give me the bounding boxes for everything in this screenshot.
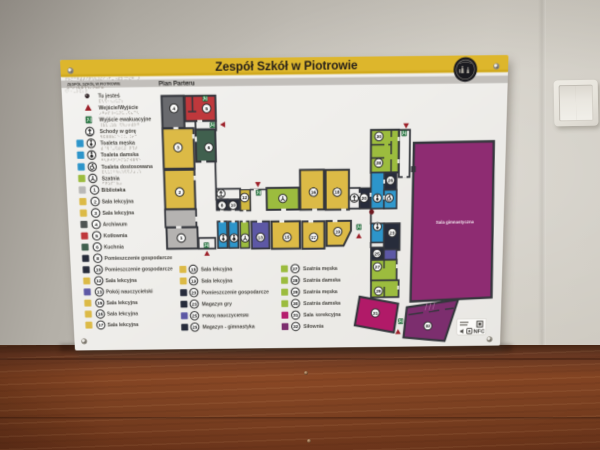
svg-text:Pokój nauczycielski: Pokój nauczycielski: [202, 313, 249, 319]
svg-text:Sala lekcyjna: Sala lekcyjna: [105, 278, 137, 284]
svg-text:Sala korekcyjna: Sala korekcyjna: [303, 313, 341, 319]
svg-text:Toaleta damska: Toaleta damska: [101, 152, 140, 158]
svg-text:3: 3: [94, 211, 97, 217]
svg-text:Sala lekcyjna: Sala lekcyjna: [201, 278, 233, 284]
svg-text:Toaleta męska: Toaleta męska: [100, 141, 136, 147]
svg-text:12: 12: [242, 195, 248, 201]
svg-text:31: 31: [293, 313, 298, 319]
svg-text:15: 15: [285, 235, 290, 241]
svg-text:29: 29: [376, 289, 381, 295]
svg-text:8: 8: [221, 203, 224, 209]
svg-text:5: 5: [205, 106, 208, 112]
svg-text:4: 4: [95, 222, 98, 228]
svg-text:13: 13: [97, 290, 103, 296]
svg-text:23: 23: [390, 231, 395, 237]
svg-text:29: 29: [293, 290, 298, 296]
svg-text:NFC: NFC: [473, 329, 485, 335]
svg-text:10: 10: [230, 203, 236, 209]
svg-text:Sala lekcyjna: Sala lekcyjna: [102, 199, 135, 205]
svg-text:Sala lekcyjna: Sala lekcyjna: [107, 323, 139, 329]
svg-text:Biblioteka: Biblioteka: [101, 187, 126, 193]
svg-text:Sala lekcyjna: Sala lekcyjna: [201, 267, 233, 273]
svg-text:Pomieszczenie gospodarcze: Pomieszczenie gospodarcze: [105, 267, 173, 273]
svg-text:27: 27: [293, 267, 298, 273]
svg-text:17: 17: [98, 323, 104, 329]
svg-text:18: 18: [191, 267, 197, 273]
svg-text:Szatnia męska: Szatnia męska: [303, 289, 338, 295]
svg-text:19: 19: [335, 229, 340, 235]
svg-text:28: 28: [293, 278, 298, 284]
svg-text:1: 1: [180, 236, 183, 242]
svg-text:2: 2: [94, 199, 97, 205]
svg-text:Schody w górę: Schody w górę: [100, 129, 137, 135]
svg-text:30: 30: [293, 301, 298, 307]
svg-text:4: 4: [173, 106, 176, 112]
svg-text:Szatnia: Szatnia: [102, 176, 121, 182]
svg-text:Pomieszczenie gospodarcze: Pomieszczenie gospodarcze: [104, 255, 172, 261]
svg-text:5: 5: [95, 234, 98, 240]
svg-text:6: 6: [207, 145, 210, 151]
svg-text:Siłownia: Siłownia: [303, 324, 324, 330]
svg-text:13: 13: [258, 235, 263, 241]
svg-text:Sala gimnastyczna: Sala gimnastyczna: [436, 219, 474, 224]
svg-text:Toaleta dostosowana: Toaleta dostosowana: [101, 164, 154, 170]
svg-text:20: 20: [191, 290, 196, 296]
svg-text:12: 12: [96, 279, 102, 285]
svg-text:1: 1: [93, 188, 96, 194]
svg-text:17: 17: [311, 235, 316, 241]
svg-text:10: 10: [96, 267, 102, 273]
svg-text:8: 8: [96, 256, 99, 262]
svg-text:Sala lekcyjna: Sala lekcyjna: [106, 300, 138, 306]
svg-text:Tu jesteś: Tu jesteś: [98, 93, 120, 99]
svg-text:32: 32: [293, 324, 298, 330]
svg-text:23: 23: [192, 302, 197, 308]
svg-text:Pokój nauczycielski: Pokój nauczycielski: [106, 289, 154, 295]
svg-text:Wejście/Wyjście: Wejście/Wyjście: [98, 105, 138, 111]
svg-text:16: 16: [311, 190, 316, 196]
svg-text:32: 32: [425, 324, 430, 330]
svg-text:20: 20: [361, 196, 366, 202]
svg-text:27: 27: [375, 265, 380, 271]
svg-text:Kuchnia: Kuchnia: [104, 245, 125, 251]
svg-text:Zespół Szkół w Piotrowie: Zespół Szkół w Piotrowie: [215, 58, 358, 74]
svg-text:2: 2: [178, 190, 181, 196]
svg-text:31: 31: [373, 311, 378, 317]
svg-text:18: 18: [335, 190, 340, 196]
svg-text:Kotłownia: Kotłownia: [103, 233, 128, 239]
svg-text:30: 30: [376, 134, 382, 140]
svg-text:Szatnia damska: Szatnia damska: [303, 278, 341, 284]
svg-text:19: 19: [191, 279, 196, 285]
svg-text:Plan Parteru: Plan Parteru: [158, 80, 194, 87]
svg-text:26: 26: [192, 325, 197, 331]
svg-text:Sala lekcyjna: Sala lekcyjna: [107, 312, 139, 318]
svg-text:Archiwum: Archiwum: [103, 222, 128, 228]
svg-text:Pomieszczenie gospodarcze: Pomieszczenie gospodarcze: [201, 290, 268, 296]
svg-text:Magazyn - gimnastyka: Magazyn - gimnastyka: [202, 324, 255, 330]
svg-text:Szatnia damska: Szatnia damska: [303, 301, 341, 307]
svg-text:28: 28: [376, 161, 381, 167]
svg-text:16: 16: [98, 312, 104, 318]
svg-text:Sala lekcyjna: Sala lekcyjna: [102, 210, 135, 216]
svg-text:25: 25: [192, 314, 197, 320]
svg-text:6: 6: [96, 245, 99, 251]
svg-text:3: 3: [177, 145, 180, 151]
svg-text:Szatnia męska: Szatnia męska: [303, 266, 338, 272]
svg-text:Wyjście ewakuacyjne: Wyjście ewakuacyjne: [99, 117, 151, 124]
svg-text:15: 15: [97, 301, 103, 307]
svg-text:26: 26: [388, 178, 393, 184]
svg-text:Magazyn gry: Magazyn gry: [202, 302, 232, 308]
svg-text:25: 25: [374, 251, 379, 257]
